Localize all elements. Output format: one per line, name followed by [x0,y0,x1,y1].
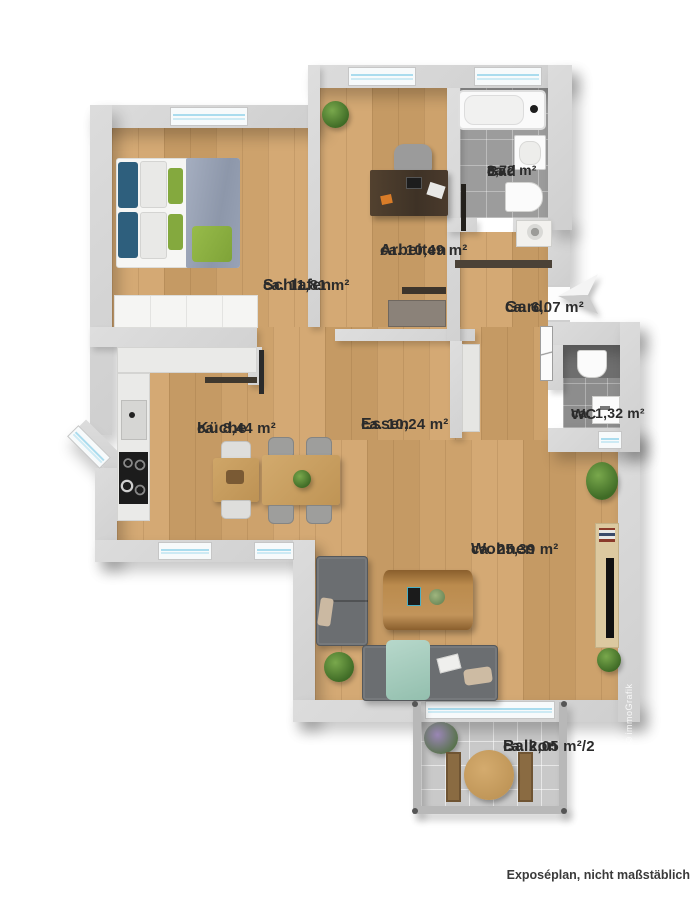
living-plant-bottom-right [597,648,621,672]
kitchen-sink [121,400,147,440]
dining-chair-3 [268,505,294,524]
balcony-bench-right [518,752,533,802]
illustration-credit: Illustration ©immoGrafik [624,630,634,795]
entry-door-leaf [540,326,553,381]
window-kitchen-bottom-1 [158,542,212,560]
kitchen-counter-top [117,347,257,373]
bed-pillow-blue-top [118,162,138,208]
room-area: ca. 11,81 m² [263,277,350,294]
window-bedroom [170,107,248,126]
window-bath [474,67,542,86]
wc-toilet [577,350,607,378]
dining-chair-4 [306,505,332,524]
kitchen-table-deco [226,470,244,484]
living-plant-top-right [586,462,618,500]
tv-screen [606,558,614,638]
room-area: ca. 8,44 m² [197,420,276,437]
room-area: ca. 25,39 m² [471,541,558,558]
room-area: ca. 1,32 m² [571,406,645,422]
bedroom-wardrobe [114,295,258,328]
bed-pillow-green-bottom [168,214,183,250]
wall-living-west [293,540,315,722]
balcony-bolt-tl [412,701,418,707]
dining-table-plant [293,470,311,488]
room-area: ca. 10,24 m² [361,416,448,433]
window-kitchen-bottom-2 [254,542,294,560]
office-sideboard [388,300,446,327]
coffee-table [383,570,473,630]
balcony-bolt-br [561,808,567,814]
coffee-table-tablet [407,587,421,606]
room-area: ca. 6,07 m² [505,299,584,316]
sofa-two-seat-seam [330,600,368,602]
wall-wc-east [620,322,640,452]
dining-chair-1 [268,437,294,456]
bed-pillow-white-top [140,161,167,208]
bed-pillow-green-top [168,168,183,204]
bed-pillow-blue-bottom [118,212,138,258]
balcony-bolt-tr [561,701,567,707]
kitchen-wall-shelf [205,377,257,383]
room-area: ca. 10,49 m² [380,242,467,259]
kitchen-chair-bottom [221,500,251,519]
balcony-table [464,750,514,800]
room-area: ca. 2,05 m²/2 [503,738,595,755]
room-area: 3,72 m² [487,163,537,179]
balcony-bolt-bl [412,808,418,814]
coffee-table-vase [429,589,445,605]
office-plant [322,101,349,128]
kitchen-door-leaf [259,350,264,394]
balcony-railing-left [413,702,421,814]
wall-dining-corridor [450,341,462,438]
wardrobe-rail [455,260,552,268]
office-wall-shelf [402,287,446,294]
bed-throw-green [192,226,232,262]
kitchen-faucet [129,412,135,418]
balcony-railing-bottom [413,806,567,814]
washing-machine-door [527,224,543,240]
disclaimer-text: Exposéplan, nicht maßstäblich [507,868,690,882]
wall-left [90,105,112,435]
bath-toilet [505,182,543,212]
bathtub-basin [464,95,524,125]
corridor-built-in-cabinet [462,344,480,432]
living-plant-left [324,652,354,682]
wall-bedroom-bottom [90,327,257,347]
bed-pillow-white-bottom [140,212,167,259]
bath-door-leaf [461,184,466,231]
office-chair [394,144,432,172]
window-office [348,67,416,86]
bathtub-faucet [530,105,538,113]
floor-plan: Schlafen ca. 11,81 m² Arbeiten ca. 10,49… [0,0,698,900]
stove [119,452,148,504]
balcony-plant [424,722,458,754]
balcony-bench-left [446,752,461,802]
window-living-east-niche [598,431,622,449]
balcony-railing-right [559,702,567,814]
sideboard-books [599,528,615,542]
desk-laptop [406,177,422,189]
balcony-glass-door [425,701,555,719]
wall-bath-east [548,65,572,230]
sofa-blanket-mint [386,640,430,700]
dining-chair-2 [306,437,332,456]
